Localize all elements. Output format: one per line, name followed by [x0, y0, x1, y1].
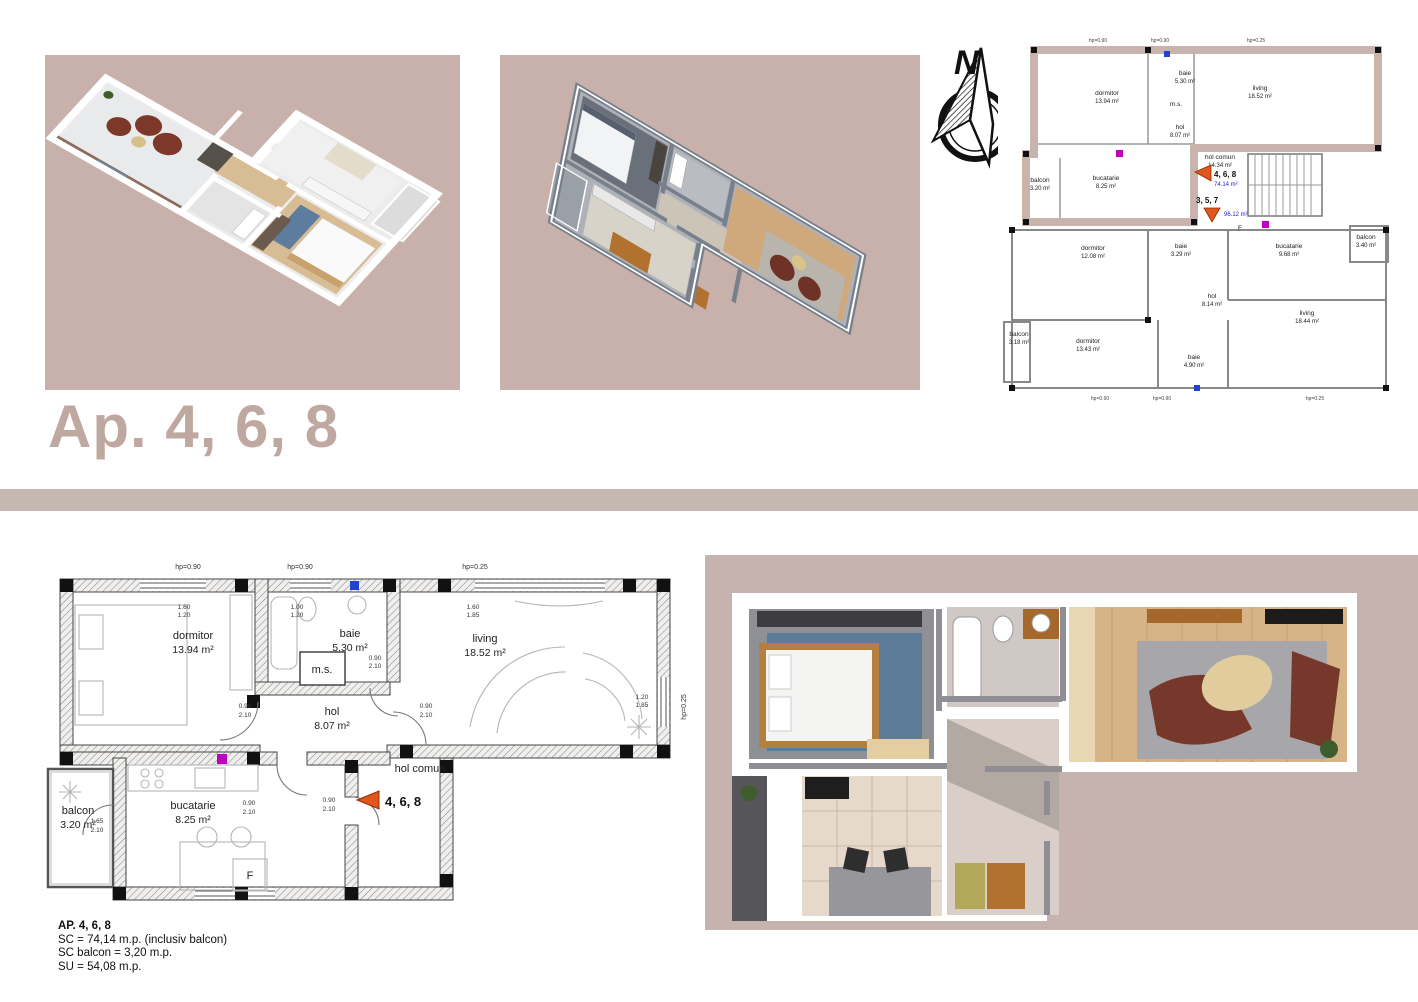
presentation-sheet: N: [0, 0, 1418, 1002]
svg-text:hol: hol: [1208, 293, 1217, 300]
room-area: 8.07 m²: [314, 720, 350, 732]
entry-marker-label: 4, 6, 8: [385, 794, 421, 809]
svg-text:1.20: 1.20: [178, 612, 191, 619]
room-area: 8.25 m²: [175, 814, 211, 826]
site-hp-label: hp=0.90: [1151, 38, 1169, 44]
svg-text:baie: baie: [1175, 243, 1188, 250]
svg-text:3, 5, 7: 3, 5, 7: [1196, 196, 1219, 205]
floor-plan: dormitor 13.94 m² baie 5.30 m² living 18…: [45, 557, 695, 930]
room-area: 5.30 m²: [332, 642, 368, 654]
svg-text:13.43 m²: 13.43 m²: [1076, 347, 1100, 353]
svg-text:8.25 m²: 8.25 m²: [1096, 184, 1116, 190]
svg-text:9.68 m²: 9.68 m²: [1279, 252, 1299, 258]
svg-text:18.44 m²: 18.44 m²: [1295, 319, 1319, 325]
area-summary: AP. 4, 6, 8 SC = 74,14 m.p. (inclusiv ba…: [58, 920, 227, 974]
parapet-label: hp=0.25: [462, 564, 488, 571]
summary-su: SU = 54,08 m.p.: [58, 961, 227, 975]
svg-text:1.20: 1.20: [636, 694, 649, 701]
svg-text:F: F: [1238, 225, 1242, 232]
svg-text:dormitor: dormitor: [1076, 338, 1101, 345]
svg-text:2.10: 2.10: [323, 806, 336, 813]
room-label: balcon: [62, 805, 94, 817]
site-hp-label: hp=0.90: [1089, 38, 1107, 44]
svg-text:balcon: balcon: [1356, 234, 1376, 241]
svg-text:13.94 m²: 13.94 m²: [1095, 99, 1119, 105]
svg-text:3.29 m²: 3.29 m²: [1171, 252, 1191, 258]
summary-title: AP. 4, 6, 8: [58, 920, 227, 934]
svg-text:balcon: balcon: [1030, 177, 1050, 184]
parapet-label: hp=0.90: [287, 564, 313, 571]
room-area: 18.52 m²: [464, 647, 506, 659]
svg-text:4.90 m²: 4.90 m²: [1184, 363, 1204, 369]
svg-text:baie: baie: [1188, 354, 1201, 361]
svg-text:74.14 m²: 74.14 m²: [1214, 182, 1238, 188]
svg-text:0.90: 0.90: [239, 703, 252, 710]
floor-plan-svg: dormitor 13.94 m² baie 5.30 m² living 18…: [45, 557, 695, 925]
svg-text:hol comun: hol comun: [1205, 154, 1235, 161]
utility-marker-blue: [1194, 385, 1200, 391]
svg-text:96.12 m²: 96.12 m²: [1224, 212, 1248, 218]
render-3d-topdown-svg: [705, 555, 1418, 930]
site-plan-svg: hp=0.90 hp=0.90 hp=0.25 hp=0.90 hp=0.90 …: [998, 30, 1418, 404]
render-3d-perspective-1: [45, 55, 460, 395]
site-plan: hp=0.90 hp=0.90 hp=0.25 hp=0.90 hp=0.90 …: [998, 30, 1418, 409]
svg-text:living: living: [1300, 310, 1315, 317]
room-label: bucatarie: [170, 800, 215, 812]
room-label: dormitor: [173, 630, 214, 642]
svg-text:3.20 m²: 3.20 m²: [1030, 186, 1050, 192]
site-stairwell: [1248, 154, 1322, 216]
common-hall-label: hol comun: [395, 763, 446, 775]
svg-text:8.14 m²: 8.14 m²: [1202, 302, 1222, 308]
svg-text:5.30 m²: 5.30 m²: [1175, 79, 1195, 85]
svg-text:living: living: [1253, 85, 1268, 92]
svg-text:m.s.: m.s.: [1170, 101, 1182, 108]
render-3d-topdown: [705, 555, 1418, 935]
svg-text:1.65: 1.65: [91, 818, 104, 825]
svg-text:0.90: 0.90: [243, 800, 256, 807]
svg-text:hol: hol: [1176, 124, 1185, 131]
svg-text:bucatarie: bucatarie: [1093, 175, 1120, 182]
utility-marker-blue: [350, 581, 359, 590]
svg-text:1.85: 1.85: [467, 612, 480, 619]
site-hp-label: hp=0.90: [1091, 396, 1109, 402]
divider-band: [0, 489, 1418, 511]
room-area: 13.94 m²: [172, 644, 214, 656]
svg-text:0.90: 0.90: [323, 797, 336, 804]
svg-text:1.60: 1.60: [467, 604, 480, 611]
svg-text:0.90: 0.90: [369, 655, 382, 662]
storage-label: m.s.: [312, 664, 333, 676]
svg-text:4, 6, 8: 4, 6, 8: [1214, 170, 1237, 179]
svg-text:8.07 m²: 8.07 m²: [1170, 133, 1190, 139]
svg-text:1.85: 1.85: [636, 702, 649, 709]
svg-text:14.34 m²: 14.34 m²: [1208, 163, 1232, 169]
svg-text:baie: baie: [1179, 70, 1192, 77]
page-title: Ap. 4, 6, 8: [48, 392, 339, 461]
svg-text:1.20: 1.20: [291, 612, 304, 619]
utility-marker-blue: [1164, 51, 1170, 57]
svg-text:18.52 m²: 18.52 m²: [1248, 94, 1272, 100]
parapet-label: hp=0.90: [175, 564, 201, 571]
parapet-label: hp=0.25: [681, 694, 688, 720]
svg-text:2.10: 2.10: [239, 712, 252, 719]
render-3d-perspective-1-svg: [45, 55, 460, 390]
summary-sc: SC = 74,14 m.p. (inclusiv balcon): [58, 934, 227, 948]
svg-text:3.40 m²: 3.40 m²: [1356, 243, 1376, 249]
svg-text:1.60: 1.60: [178, 604, 191, 611]
svg-text:dormitor: dormitor: [1095, 90, 1120, 97]
utility-marker-magenta: [1116, 150, 1123, 157]
svg-text:dormitor: dormitor: [1081, 245, 1106, 252]
utility-marker-magenta: [217, 754, 227, 764]
svg-text:3.18 m²: 3.18 m²: [1009, 340, 1029, 346]
site-hp-label: hp=0.25: [1306, 396, 1324, 402]
room-label: baie: [340, 628, 361, 640]
svg-text:2.10: 2.10: [420, 712, 433, 719]
fridge-label: F: [247, 870, 254, 882]
compass-n-label: N: [954, 44, 980, 82]
render-3d-perspective-2: [500, 55, 920, 395]
svg-text:12.08 m²: 12.08 m²: [1081, 254, 1105, 260]
svg-text:0.90: 0.90: [420, 703, 433, 710]
room-label: hol: [325, 706, 340, 718]
site-hp-label: hp=0.90: [1153, 396, 1171, 402]
utility-marker-magenta: [1262, 221, 1269, 228]
svg-text:2.10: 2.10: [243, 809, 256, 816]
summary-sc-balcon: SC balcon = 3,20 m.p.: [58, 947, 227, 961]
svg-text:balcon: balcon: [1009, 331, 1029, 338]
svg-text:2.10: 2.10: [369, 663, 382, 670]
svg-text:bucatarie: bucatarie: [1276, 243, 1303, 250]
svg-text:1.00: 1.00: [291, 604, 304, 611]
render-3d-perspective-2-svg: [500, 55, 920, 390]
room-label: living: [472, 633, 497, 645]
site-hp-label: hp=0.25: [1247, 38, 1265, 44]
svg-text:2.10: 2.10: [91, 827, 104, 834]
